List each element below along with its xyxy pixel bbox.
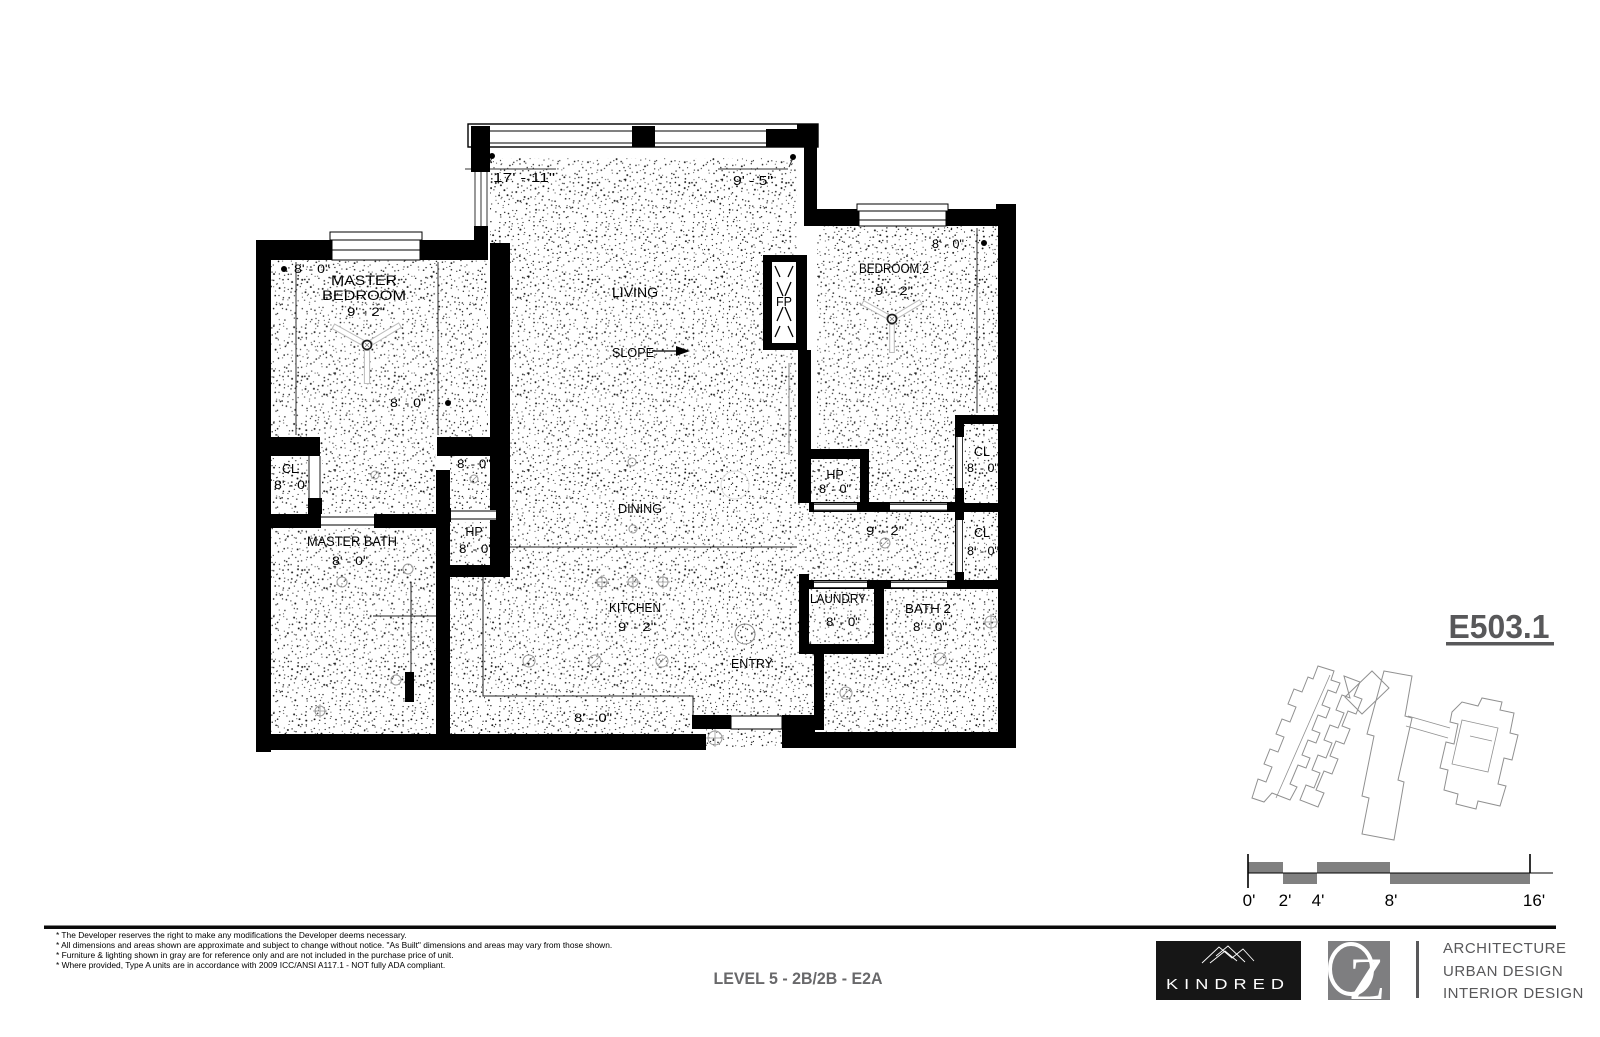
svg-text:* All dimensions and areas sho: * All dimensions and areas shown are app… xyxy=(56,940,612,950)
svg-text:8' - 0": 8' - 0" xyxy=(332,554,368,568)
svg-text:8' - 0": 8' - 0" xyxy=(932,237,964,251)
svg-text:CL: CL xyxy=(282,462,298,476)
svg-text:4': 4' xyxy=(1312,891,1325,910)
svg-text:MASTER BATH: MASTER BATH xyxy=(307,533,397,549)
svg-text:8' - 0": 8' - 0" xyxy=(274,478,310,492)
svg-text:* The Developer reserves the r: * The Developer reserves the right to ma… xyxy=(56,930,407,940)
svg-text:8' - 0": 8' - 0" xyxy=(913,620,947,634)
svg-text:* Where provided, Type A units: * Where provided, Type A units are in ac… xyxy=(56,960,445,970)
svg-text:8' - 0": 8' - 0" xyxy=(967,461,999,475)
svg-text:8' - 0": 8' - 0" xyxy=(574,711,612,725)
svg-text:BEDROOM: BEDROOM xyxy=(322,287,406,303)
svg-text:8' - 0": 8' - 0" xyxy=(967,544,999,558)
svg-text:8' - 0": 8' - 0" xyxy=(826,615,860,629)
svg-text:INTERIOR DESIGN: INTERIOR DESIGN xyxy=(1443,985,1584,1002)
svg-text:16': 16' xyxy=(1523,891,1545,910)
svg-text:8' - 0": 8' - 0" xyxy=(390,396,426,410)
svg-text:2': 2' xyxy=(1279,891,1292,910)
svg-text:SLOPE: SLOPE xyxy=(612,345,654,360)
svg-text:DINING: DINING xyxy=(618,501,662,516)
svg-text:URBAN DESIGN: URBAN DESIGN xyxy=(1443,963,1563,980)
svg-text:8': 8' xyxy=(1385,891,1398,910)
svg-text:9' - 5": 9' - 5" xyxy=(733,174,773,188)
svg-text:8' - 0": 8' - 0" xyxy=(294,262,330,276)
svg-text:KITCHEN: KITCHEN xyxy=(609,600,661,615)
svg-text:9' - 2": 9' - 2" xyxy=(618,620,656,634)
svg-text:MASTER: MASTER xyxy=(331,272,397,288)
svg-text:17' - 11": 17' - 11" xyxy=(493,171,555,185)
svg-text:E503.1: E503.1 xyxy=(1449,608,1550,645)
svg-text:8' - 0": 8' - 0" xyxy=(457,457,491,471)
svg-text:CL: CL xyxy=(974,526,990,540)
svg-text:LAUNDRY: LAUNDRY xyxy=(810,591,866,606)
svg-text:* Furniture & lighting shown i: * Furniture & lighting shown in gray are… xyxy=(56,950,454,960)
svg-text:CL: CL xyxy=(974,445,990,459)
svg-text:ENTRY: ENTRY xyxy=(731,656,773,671)
svg-text:FP: FP xyxy=(776,295,792,309)
svg-text:LEVEL 5 - 2B/2B - E2A: LEVEL 5 - 2B/2B - E2A xyxy=(714,969,883,988)
svg-text:HP: HP xyxy=(465,525,482,539)
svg-text:LIVING: LIVING xyxy=(612,284,658,300)
svg-text:9' - 2": 9' - 2" xyxy=(866,524,904,538)
svg-text:8' - 0": 8' - 0" xyxy=(819,482,851,496)
svg-text:Z: Z xyxy=(1349,946,1386,1012)
svg-text:BEDROOM 2: BEDROOM 2 xyxy=(859,260,929,276)
svg-text:HP: HP xyxy=(826,468,843,482)
svg-text:BATH 2: BATH 2 xyxy=(905,601,951,616)
svg-text:ARCHITECTURE: ARCHITECTURE xyxy=(1443,940,1567,957)
svg-text:0': 0' xyxy=(1243,891,1256,910)
svg-text:9' - 2": 9' - 2" xyxy=(347,305,385,319)
svg-text:KINDRED: KINDRED xyxy=(1166,976,1290,993)
svg-text:8' - 0": 8' - 0" xyxy=(459,542,493,556)
svg-text:9' - 2": 9' - 2" xyxy=(875,284,913,298)
